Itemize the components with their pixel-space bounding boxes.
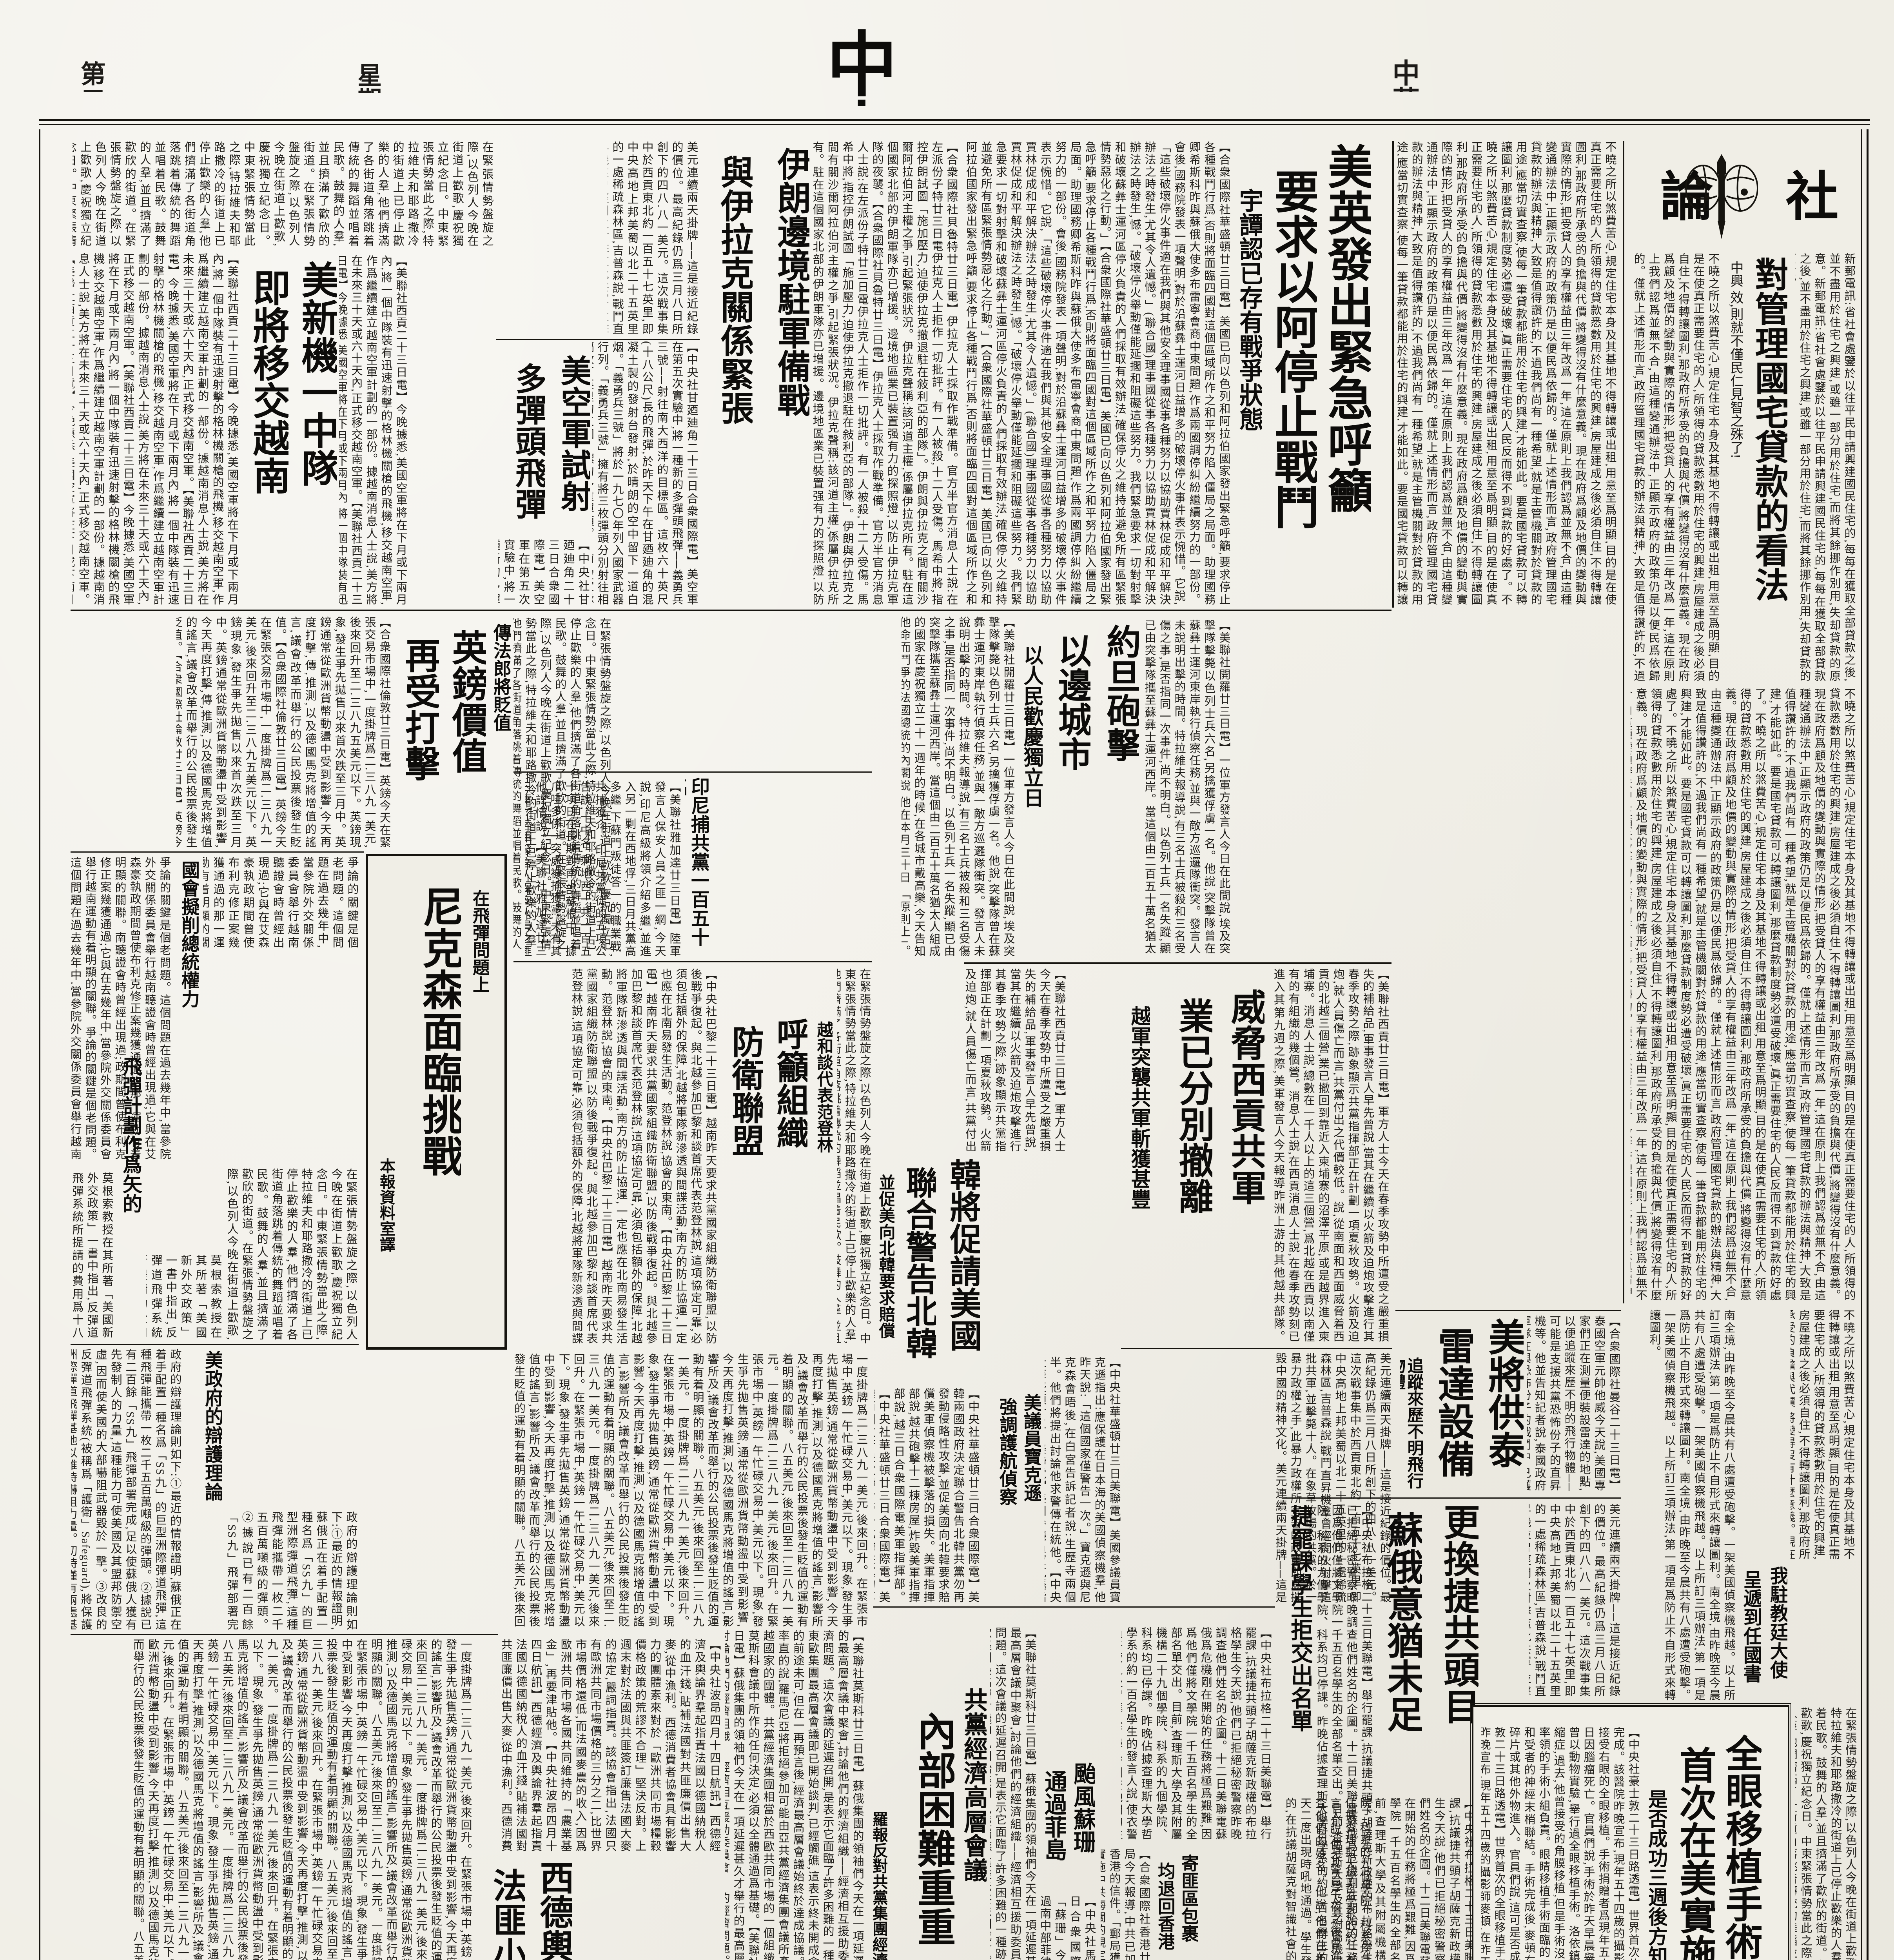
franc-body: 【合衆國際社倫敦廿三日電】英鎊今天在緊張交易市場中,一度掛牌爲二.三八九一美元,… <box>176 616 391 848</box>
franc-kicker: 傳法郎將貶值 <box>488 623 511 788</box>
missileplan-headline: 飛彈計劃作爲矢的 <box>117 1056 142 1245</box>
iran-body-right: 【合衆國際社貝魯特廿三日電】伊拉克人士採取作戰準備。官方半官方消息人士說:在左派… <box>813 141 958 606</box>
germany-headline-2: 法匪小麥交易 <box>479 1868 525 1960</box>
iran-body-left: 美元連續兩天掛牌──這是接近紀錄的價位。最高紀錄仍爲三月八日所創下的四八.八一美… <box>608 141 698 335</box>
defense-headline: 美政府的辯護理論 <box>185 1350 222 1507</box>
nixon-kicker: 在飛彈問題上 <box>467 889 489 1066</box>
czech-subhead: 捷罷課學生拒交出名單 <box>1281 1504 1312 1791</box>
divider-germany-top <box>71 1634 498 1635</box>
comecon-body-mid: 【美聯社莫斯科廿三日電】蘇俄集團的領袖們今天在一項延遲甚久才舉行的最高層會議中聚… <box>990 1627 1037 1960</box>
jordan-headline-2: 以邊城市 <box>1047 633 1090 798</box>
editorial-continuation: 不曉之所以煞費苦心,規定住宅本身及其基地不得轉讓或出租,用意至爲明顯,目的是在使… <box>1397 141 1617 606</box>
czech-headline-1: 更換捷共頭目 <box>1431 1503 1479 1774</box>
eye-headline-2: 首次在美實施 <box>1671 1746 1715 1960</box>
mid-filler: 一度掛牌爲二.三八九一美元,後來回升。在緊張市場中,英鎊一午忙碌交易中,美元以下… <box>513 1353 868 1628</box>
divider-thai-bottom <box>1282 1497 1621 1499</box>
editorial-lede: 新郵電訊:省社會處鑒於以往平民申請興建國民住宅的,每每在獲取全部貸款之後,並不盡… <box>1795 253 1856 682</box>
korea-headline-1: 韓將促請美國 <box>938 1158 980 1370</box>
thai-body-right: 【合衆國際社曼谷二十三日電】泰國空軍元帥他威今天說,美國專家們正在測量便裝設雷達… <box>1527 1315 1621 1492</box>
germany-body-top: 【中央社波昂四月十四日航訊】西德經濟及輿論界羣起指責法國以德國納稅人的血汗錢,貼… <box>502 1639 721 1852</box>
iran-headline-1: 伊朗邊境駐軍備戰 <box>755 147 809 461</box>
typhoon-headline-2: 通過菲島 <box>1040 1770 1066 1887</box>
thai-extra: 美元連續兩天掛牌──這是接近紀錄的價位。最高紀錄仍爲三月八日所創下的四八.八一美… <box>1529 1503 1621 1697</box>
parcels-body: 【合衆國際社香港廿三日電】郵局今天報導,中共已加強控制來自香港的信件。「郵局獲得… <box>1101 1848 1151 1960</box>
divider-usaf-top <box>496 339 700 340</box>
defense-body-left: 政府的辯護理論則如下:①最近的情報證明,蘇俄正在着手配置一種名爲「SS九」的巨型… <box>71 1348 182 1631</box>
usplanes-body-right: 【美聯社西貢二十三日電】今晚據悉,美國空軍將在下月或下兩月內,將一個中隊裝有迅速… <box>339 255 408 606</box>
header-rule-bottom <box>39 124 1870 125</box>
divider-saigon-top <box>964 962 1391 964</box>
korea-body: 【中央社華盛頓廿三日合衆國際電】美韓兩國政府決定聯合警告北韓共黨勿再發動侵略性攻… <box>874 1388 980 1603</box>
vietconf-body: 【中央社巴黎二十三日電】越南昨天要求共黨國家組織防衛聯盟,以防後戰爭復起。與北越… <box>572 968 717 1345</box>
jordan-body-right: 【美聯社開羅廿三日電】一位軍方發言人今日在此間說,埃及突擊隊擊斃以色列士兵六名,… <box>1143 619 1231 955</box>
eye-right-filler: 在緊張情勢盤旋之際,以色列人今晚在街道上歡歌,慶祝獨立紀念日。中東緊張情勢當此之… <box>1795 1707 1857 1960</box>
usaf-headline-2: 多彈頭飛彈 <box>503 363 545 535</box>
vatican-body-right: 不曉之所以煞費苦心,規定住宅本身及其基地不得轉讓或出租,用意至爲明顯,目的是在使… <box>1791 1309 1855 1560</box>
usplanes-headline-2: 即將移交越南 <box>242 269 288 527</box>
typhoon-body: 【中央社馬尼拉二十三日合衆國際電】颱風「蘇珊」今天怒吼地通過南中部菲律賓。 <box>1041 1895 1096 1960</box>
typhoon-headline-1: 颱風蘇珊 <box>1067 1762 1095 1880</box>
divider-band1 <box>71 610 1391 611</box>
nixon-title: 尼克森面臨挑戰 <box>400 886 461 1278</box>
comecon-subhead: 羅報反對共黨集團經濟統一 <box>867 1811 887 1960</box>
topleft-strip: 在緊張情勢盤旋之際,以色列人今晚在街道上歡歌,慶祝獨立紀念日。中東緊張情勢當此之… <box>73 141 494 247</box>
eye-headline-1: 全眼移植手術 <box>1716 1734 1762 1960</box>
iran-headline-2: 與伊拉克關係緊張 <box>701 155 753 468</box>
saigon-subhead: 越軍突襲共軍斬獲甚豐 <box>1126 1005 1150 1296</box>
comecon-body-left: 【美聯社莫斯科廿三日電】蘇俄集團的領袖們今天在一項延遲甚久才舉行的最高層會議中聚… <box>725 1630 864 1960</box>
editorial-kicker: 中興 效,則就不僅民仁見智之殊了! <box>1723 261 1743 480</box>
usaf-body: 【中央社甘廼廸角二十三日合衆國際電】美空軍在第五次實驗中,將一種新的多彈頭飛彈─… <box>592 341 698 606</box>
divider-korea-bottom <box>873 1606 1275 1608</box>
main-headline-2: 要求以阿停止戰鬥 <box>1267 169 1317 604</box>
vietconf-kicker: 越和談代表范登林 <box>811 1021 833 1186</box>
edition-label: 第二版 <box>76 61 105 92</box>
congress-body-right: 爭論的關鍵是個老問題。這個問題在過去幾年中,當參院外交關係委員會舉行越南聽證會時… <box>203 857 359 949</box>
franc-headline-1: 英鎊價值 <box>442 629 486 794</box>
missileplan-body-right: 莫根索教授在其所著「美國新外交政策」一書中指出,反彈道飛彈系統所提請的費用爲十八… <box>146 1254 222 1339</box>
parcels-headline-2: 均退回香港 <box>1153 1862 1174 1960</box>
congress-headline: 國會擬削總統權力 <box>174 860 199 1025</box>
saigon-headline-1: 威脅西貢共軍 <box>1214 989 1264 1212</box>
czech-headline-2: 蘇俄意猶未足 <box>1375 1511 1422 1782</box>
vietconf-headline-1: 呼籲組織 <box>765 1017 807 1174</box>
divider-indo-bottom <box>513 961 872 962</box>
divider-thai-top <box>1395 1310 1621 1311</box>
divider-main-left <box>1392 141 1394 608</box>
vietconf-headline-2: 防衛聯盟 <box>720 1025 763 1182</box>
issue-date: 中華民國五十八年四月二十四日 <box>1388 59 1419 92</box>
vatican-headline-2: 呈遞到任國書 <box>1737 1570 1761 1703</box>
eye-subhead: 是否成功三週後方知 <box>1643 1789 1667 1960</box>
packson-body: 【中央社華盛頓廿三日美聯電】美國參議員寶克遜指出:應保護在日本海的美國偵察機羣,… <box>1045 1356 1121 1603</box>
weekday-label: 星期四 <box>353 63 381 93</box>
comecon-headline-2: 內部困難重重 <box>903 1711 954 1960</box>
indonesia-body: 【美聯社雅加達廿三日電】陸軍發言人保安人員之匪一網,今天說,印尼高級將領介紹多繼… <box>525 781 681 957</box>
jordan-subhead: 以人民歡慶獨立日 <box>1018 645 1043 849</box>
comecon-headline-1: 共黨經濟高層會議 <box>957 1688 987 1931</box>
header-rule-top <box>39 119 1870 121</box>
czech-body-low: 【中央社布拉格二十三日美聯電】舉行罷課,抗議捷共頭子胡薩克新政權的布拉格學生今天… <box>1284 1797 1476 1960</box>
midleft-filler: 在緊張情勢盤旋之際,以色列人今晚在街道上歡歌,慶祝獨立紀念日。中東緊張情勢當此之… <box>225 1168 358 1341</box>
editorial-logo-icon <box>1685 151 1758 243</box>
vatican-headline-1: 我駐教廷大使 <box>1763 1566 1787 1699</box>
saigon-body-right: 【美聯社西貢廿三日電】軍方人士今天在春季攻勢中所遭受之嚴重損失的補給品,軍事發言… <box>1270 968 1390 1343</box>
page-border-right-inner <box>1861 129 1862 1960</box>
saigon-body-left: 【美聯社西貢廿三日電】軍方人士今天在春季攻勢中所遭受之嚴重損失的補給品,軍事發言… <box>964 968 1066 1152</box>
divider-saigon-bottom <box>1121 1348 1392 1349</box>
jordan-body-left: 【美聯社開羅廿三日電】一位軍方發言人今日在此間說,埃及突擊隊擊斃以色列士兵六名,… <box>902 616 1015 957</box>
divider-indo-top <box>513 771 872 773</box>
thai-subhead: 追蹤來歷不明飛行物體 <box>1400 1357 1423 1490</box>
editorial-body-b: 不曉之所以煞費苦心,規定住宅本身及其基地不得轉讓或出租,用意至爲明顯,目的是在使… <box>1631 688 1856 1301</box>
thai-headline-1: 美將供泰 <box>1475 1318 1524 1486</box>
vatican-body-left: 南全境,由昨晚至今晨共有八處遭受砲擊。一架美國偵察機飛越。以上所訂三項辦法,第一… <box>1627 1309 1736 1701</box>
divider-congress-top <box>71 851 364 853</box>
eye-body: 【中央社豪士敦二十三日路透電】世界首次的全眼移植手術,已在此間衛理教會醫院完成。… <box>1481 1726 1640 1960</box>
page-border-left <box>39 129 40 1960</box>
usaf-body-low: 【中央社甘廼廸角二十三日合衆國際電】美空軍在第五次實驗中,將一種新的多彈頭飛彈─… <box>498 539 590 606</box>
divider-editorial-left <box>1623 141 1624 1303</box>
defense-body-right: 政府的辯護理論則如下:①最近的情報證明,蘇俄正在着手配置一種名爲「SS九」的巨型… <box>227 1511 358 1631</box>
editorial-headline: 對管理國宅貸款的看法 <box>1746 257 1787 684</box>
main-headline-1: 美英發出緊急呼籲 <box>1320 143 1371 586</box>
main-subhead: 宇譚認已存有戰爭狀態 <box>1234 188 1262 604</box>
packson-headline-1: 美議員寶克遜 <box>1018 1394 1041 1535</box>
eye-surgery-box: 全眼移植手術 首次在美實施 是否成功三週後方知 【中央社豪士敦二十三日路透電】世… <box>1472 1705 1789 1960</box>
lowerleft-filler: 一度掛牌爲二.三八九一美元,後來回升。在緊張市場中,英鎊一午忙碌交易中,美元以下… <box>73 1639 472 1960</box>
packson-headline-2: 強調護航偵察 <box>995 1397 1017 1539</box>
page-border-right-outer <box>1867 129 1869 1960</box>
korea-headline-2: 聯合警告北韓 <box>897 1166 936 1378</box>
nixon-credit: 本報資料室譯 <box>375 1158 395 1327</box>
saigon-headline-2: 業已分別撤離 <box>1162 998 1212 1221</box>
newspaper-page: 第二版 星期四 中央日報 中華民國五十八年四月二十四日 論 社 中興 效,則就不… <box>0 0 1894 1960</box>
masthead-title: 中央日報 <box>815 27 894 106</box>
jordan-headline-1: 約旦砲擊 <box>1097 624 1139 789</box>
indonesia-headline: 印尼捕共黨一百五十名 <box>685 777 709 961</box>
vietconf-right-col: 在緊張情勢盤旋之際,以色列人今晚在街道上歡歌,慶祝獨立紀念日。中東緊張情勢當此之… <box>837 968 871 1345</box>
editorial-body-a: 不曉之所以煞費苦心,規定住宅本身及其基地不得轉讓或出租,用意至爲明顯,目的是在使… <box>1631 253 1720 682</box>
parcels-headline-1: 寄匪區包裹 <box>1175 1854 1198 1952</box>
nixon-feature-box: 在飛彈問題上 尼克森面臨挑戰 本報資料室譯 <box>366 854 507 1350</box>
editorial-label-she: 社 <box>1768 169 1845 231</box>
franc-headline-2: 再受打擊 <box>395 637 439 802</box>
comecon-body-right: 【中央社布拉格二十三日美聯電】舉行罷課,抗議捷共頭子胡薩克新政權的布拉格學生今天… <box>1121 1627 1272 1840</box>
germany-headline-1: 西德輿論指責 <box>532 1860 572 1960</box>
missileplan-body-left: 莫根索教授在其所著「美國新外交政策」一書中指出,反彈道飛彈系統所提請的費用爲十八… <box>71 1172 114 1339</box>
thai-headline-2: 雷達設備 <box>1426 1327 1473 1495</box>
usplanes-headline-1: 美新機一中隊 <box>291 261 337 519</box>
main-body: 【合衆國際社華盛頓廿三日電】美國已向以色列和阿拉伯國家發出緊急呼籲,要求停止各種… <box>962 141 1231 606</box>
usplanes-body-left: 【美聯社西貢二十三日電】今晚據悉,美國空軍將在下月或下兩月內,將一個中隊裝有迅速… <box>73 253 239 606</box>
usaf-headline-1: 美空軍試射 <box>548 355 590 527</box>
divider-defense-top <box>71 1344 359 1345</box>
